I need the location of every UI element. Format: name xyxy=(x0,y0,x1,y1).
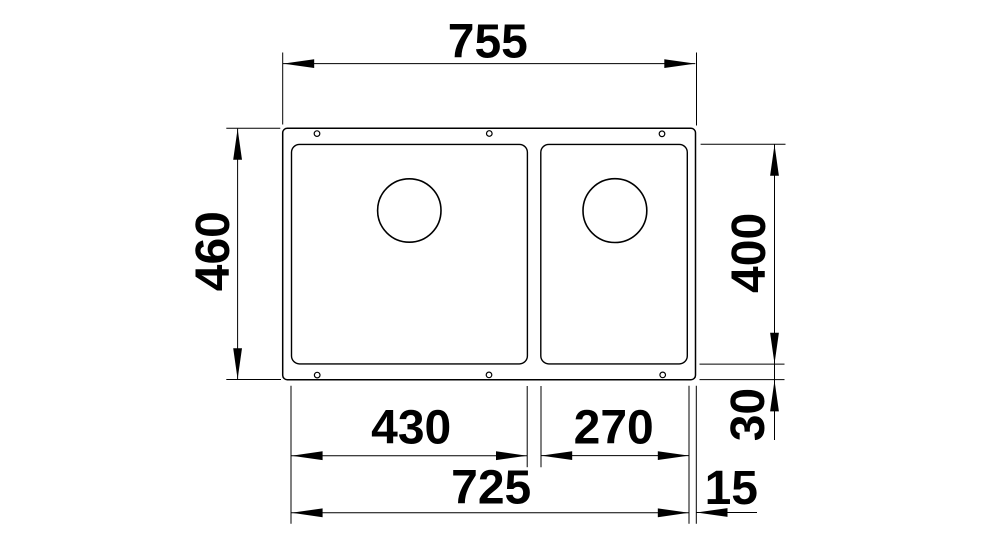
svg-text:755: 755 xyxy=(448,15,528,68)
svg-text:30: 30 xyxy=(722,388,775,441)
svg-text:15: 15 xyxy=(705,462,758,515)
svg-text:270: 270 xyxy=(574,402,654,455)
svg-text:460: 460 xyxy=(187,211,240,291)
svg-text:725: 725 xyxy=(451,462,531,515)
svg-text:400: 400 xyxy=(723,213,776,293)
svg-text:430: 430 xyxy=(371,402,451,455)
